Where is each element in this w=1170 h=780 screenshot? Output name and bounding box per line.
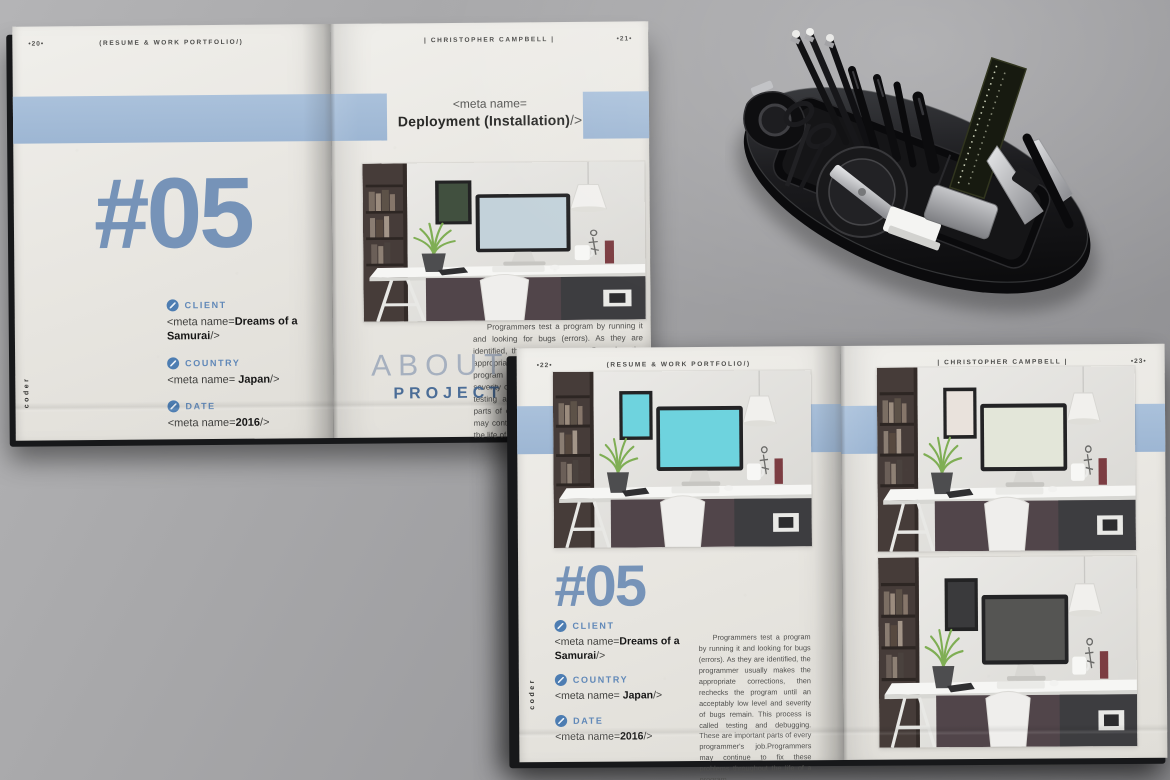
workspace-photo-teal	[553, 370, 812, 548]
field-label: CLIENT	[185, 300, 227, 310]
calendar-icon	[167, 400, 179, 412]
project-paragraph: Programmers test a program by running it…	[699, 632, 812, 780]
field-label: CLIENT	[572, 621, 614, 631]
bottom-left-page: •22• (RESUME & WORK PORTFOLIO/) #05 CLIE…	[517, 346, 844, 762]
scene: •20• (RESUME & WORK PORTFOLIO/) #05 CLIE…	[0, 0, 1170, 780]
field-client: CLIENT <meta name=Dreams of a Samurai/>	[167, 298, 312, 344]
blue-band	[13, 94, 331, 144]
project-fields: CLIENT <meta name=Dreams of a Samurai/> …	[554, 619, 693, 758]
globe-icon	[167, 357, 179, 369]
pencil-icon	[554, 620, 566, 632]
pencil-icon	[167, 299, 179, 311]
field-country: COUNTRY <meta name= Japan/>	[555, 673, 693, 704]
bottom-spread: •22• (RESUME & WORK PORTFOLIO/) #05 CLIE…	[517, 344, 1168, 763]
page-number: •21•	[617, 35, 633, 42]
field-label: DATE	[573, 716, 603, 726]
field-label: DATE	[185, 401, 215, 411]
workspace-photo	[362, 161, 645, 321]
running-header: | CHRISTOPHER CAMPBELL |	[330, 35, 648, 45]
bottom-right-page: | CHRISTOPHER CAMPBELL | •23•	[841, 344, 1168, 760]
top-left-page: •20• (RESUME & WORK PORTFOLIO/) #05 CLIE…	[12, 24, 334, 441]
field-client: CLIENT <meta name=Dreams of a Samurai/>	[554, 619, 692, 663]
field-value: <meta name=2016/>	[555, 730, 693, 745]
running-header: (RESUME & WORK PORTFOLIO/)	[12, 38, 330, 48]
page-number: •23•	[1131, 358, 1147, 365]
workspace-photo-dark	[878, 556, 1137, 748]
issue-number: #05	[13, 162, 332, 265]
field-value: <meta name=Dreams of a Samurai/>	[555, 635, 693, 663]
field-label: COUNTRY	[573, 675, 628, 685]
globe-icon	[555, 674, 567, 686]
about-project-title: ABOUT PROJECT	[371, 349, 483, 404]
field-value: <meta name= Japan/>	[555, 689, 693, 704]
issue-number: #05	[554, 557, 645, 616]
field-label: COUNTRY	[185, 357, 240, 367]
spine-text: coder	[529, 678, 536, 710]
section-headline: <meta name= Deployment (Installation)/>	[331, 95, 649, 130]
field-date: DATE <meta name=2016/>	[555, 714, 693, 745]
field-value: <meta name= Japan/>	[167, 372, 312, 388]
workspace-photo-map	[877, 366, 1136, 552]
project-fields: CLIENT <meta name=Dreams of a Samurai/> …	[167, 298, 313, 443]
desk-organizer	[725, 0, 1125, 341]
calendar-icon	[555, 715, 567, 727]
field-value: <meta name=2016/>	[168, 415, 313, 431]
field-country: COUNTRY <meta name= Japan/>	[167, 356, 312, 388]
spine-text: coder	[23, 377, 30, 409]
field-date: DATE <meta name=2016/>	[167, 399, 312, 431]
field-value: <meta name=Dreams of a Samurai/>	[167, 314, 312, 344]
running-header: (RESUME & WORK PORTFOLIO/)	[517, 360, 841, 369]
